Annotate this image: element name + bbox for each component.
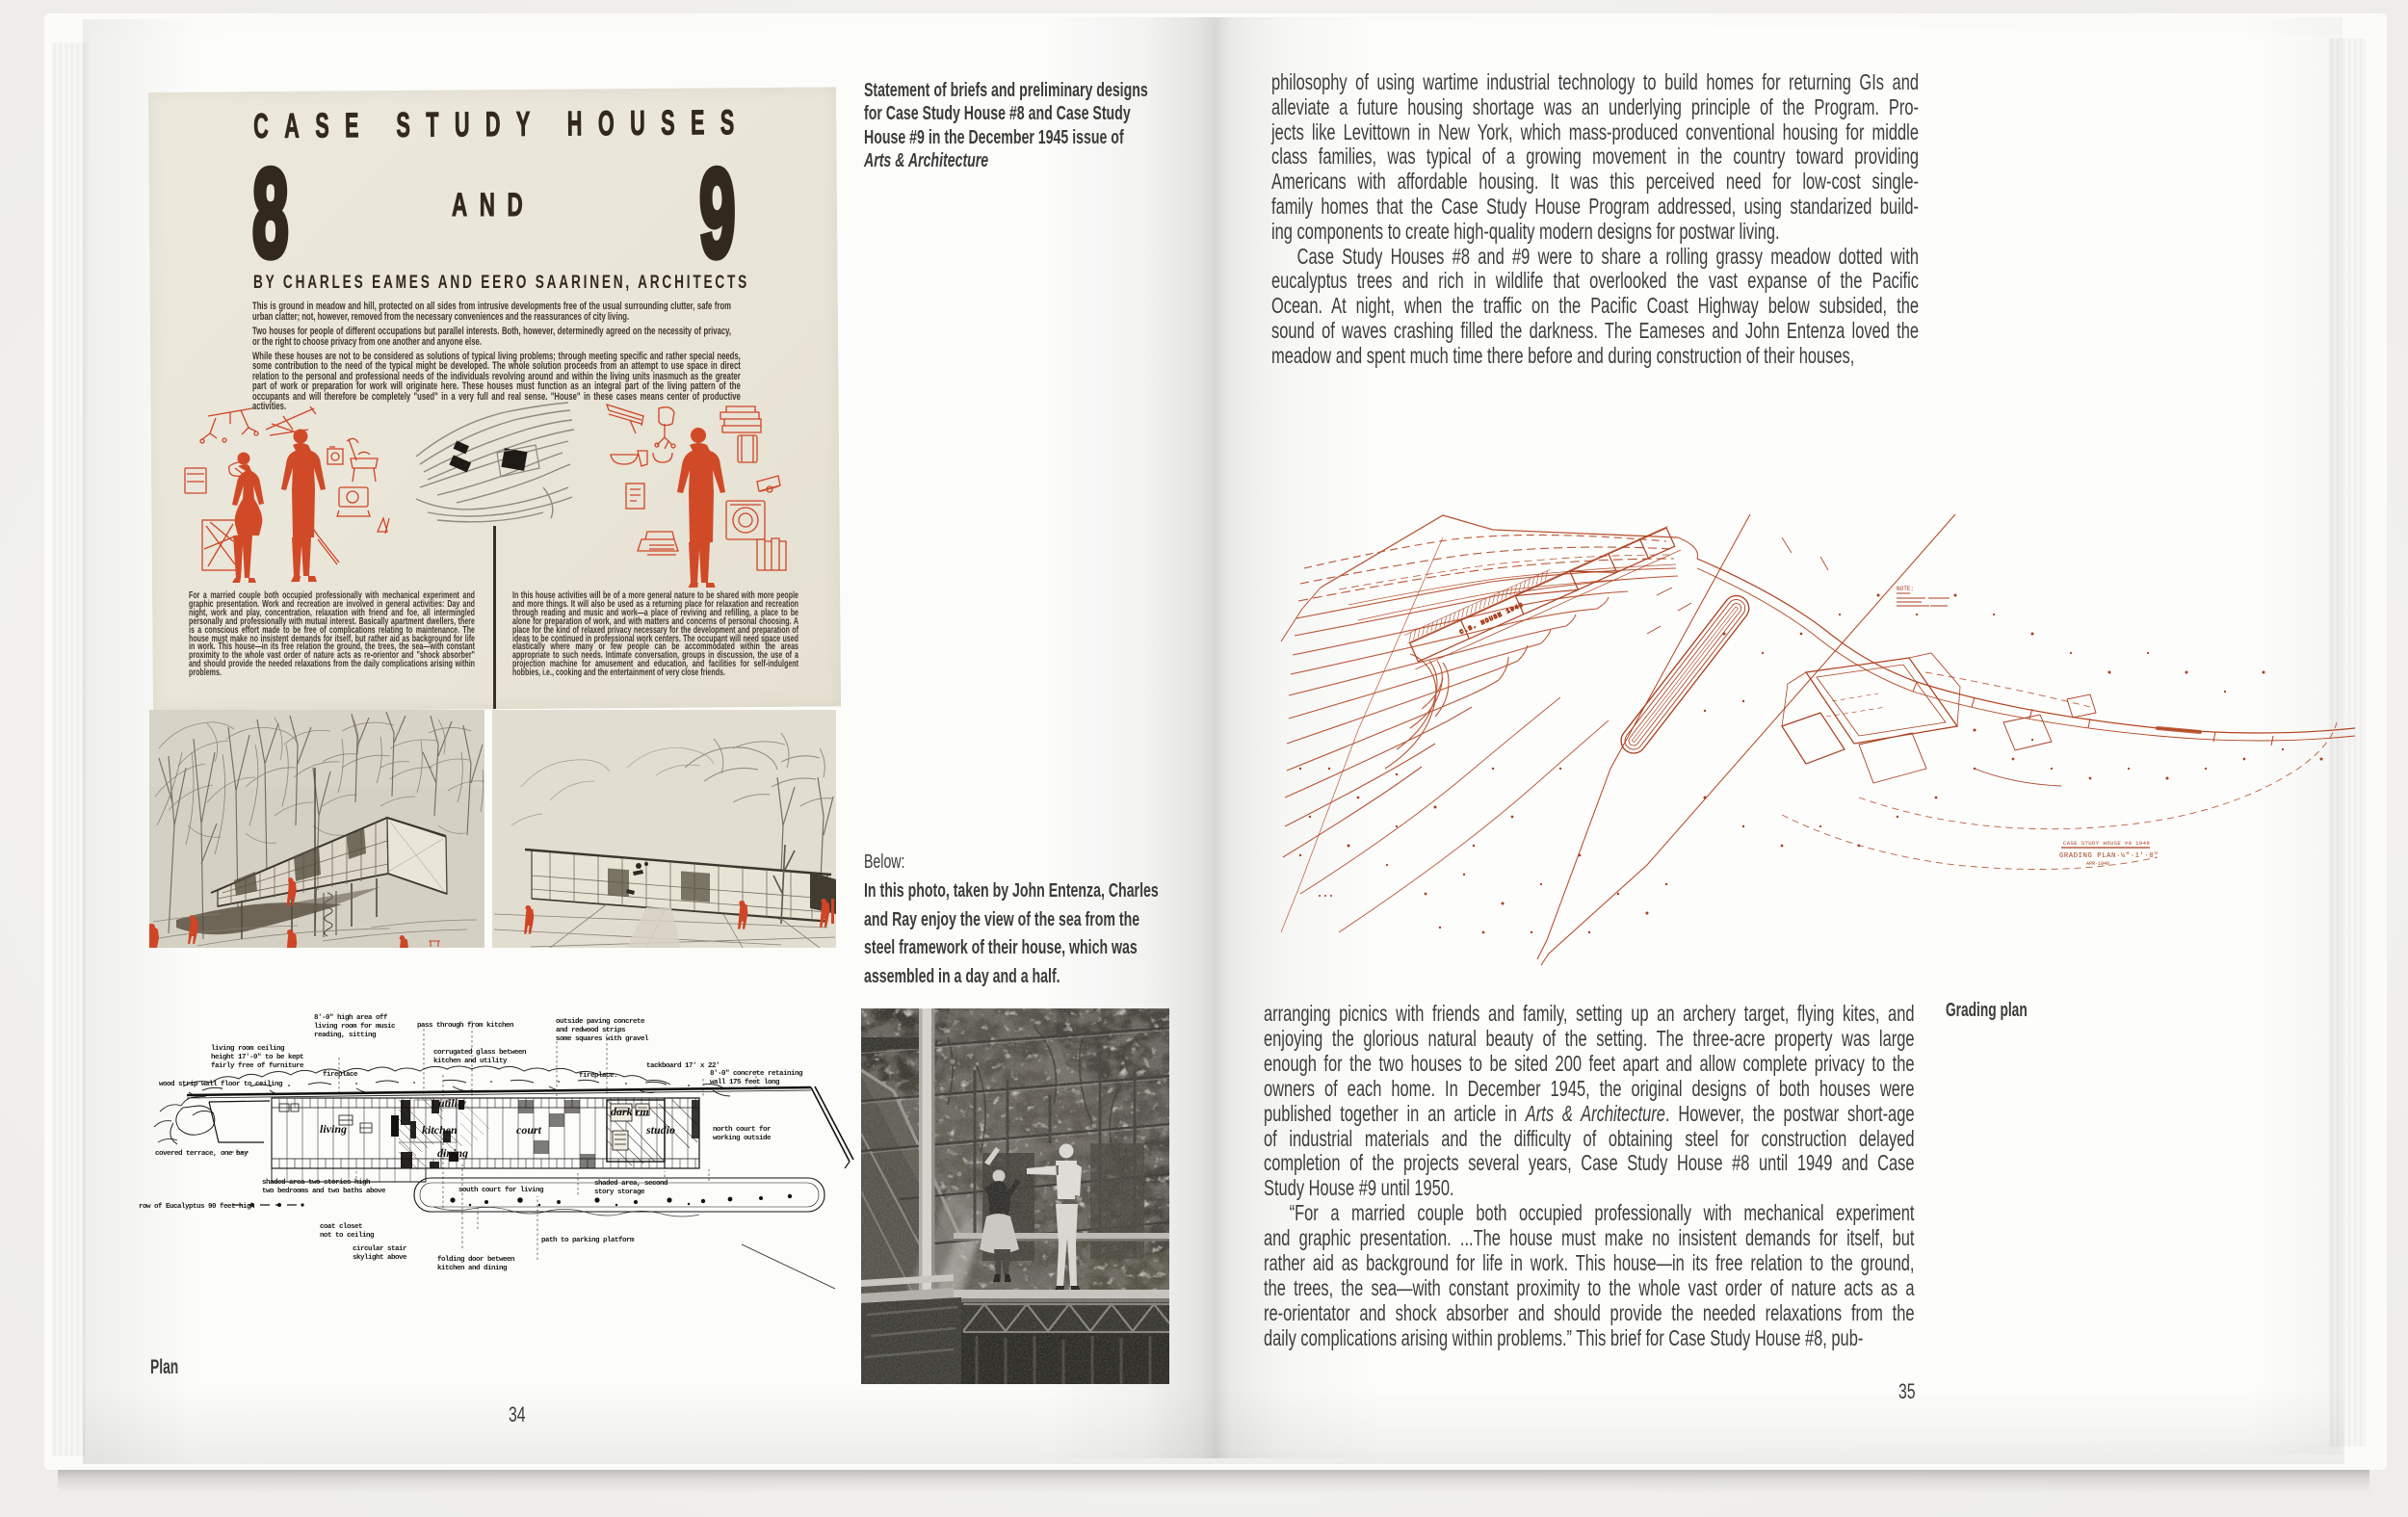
svg-text:circular stair: circular stair (353, 1245, 406, 1253)
svg-text:path to parking platform: path to parking platform (541, 1237, 635, 1244)
svg-text:covered terrace, one bay: covered terrace, one bay (155, 1150, 249, 1158)
svg-text:NOTE:: NOTE: (1897, 586, 1914, 592)
svg-text:working outside: working outside (713, 1135, 772, 1142)
svg-text:wall 175 feet long: wall 175 feet long (710, 1079, 780, 1086)
svg-text:APR·1948: APR·1948 (2086, 861, 2109, 867)
svg-text:reading, sitting: reading, sitting (314, 1032, 377, 1039)
svg-text:court: court (516, 1123, 542, 1137)
svg-text:outside paving concrete: outside paving concrete (556, 1018, 645, 1026)
svg-text:two bedrooms and two baths abo: two bedrooms and two baths above (262, 1188, 386, 1195)
svg-text:kitchen: kitchen (422, 1123, 458, 1137)
svg-text:living room ceiling: living room ceiling (211, 1045, 285, 1053)
svg-text:CASE STUDY HOUSE #9 1949: CASE STUDY HOUSE #9 1949 (2063, 840, 2150, 847)
svg-text:north court for: north court for (713, 1126, 771, 1134)
svg-text:living room for music: living room for music (314, 1023, 396, 1031)
svg-text:shaded area two stories high: shaded area two stories high (262, 1179, 371, 1187)
svg-text:living: living (320, 1122, 347, 1136)
svg-text:tackboard 17' x 22': tackboard 17' x 22' (646, 1062, 720, 1070)
svg-text:dining: dining (437, 1146, 468, 1160)
svg-text:skylight above: skylight above (353, 1254, 407, 1262)
svg-text:south court for living: south court for living (458, 1187, 544, 1194)
svg-text:story storage: story storage (594, 1189, 645, 1196)
svg-text:folding door between: folding door between (437, 1256, 515, 1264)
svg-text:fireplace: fireplace (323, 1071, 358, 1079)
svg-text:shaded area, second: shaded area, second (594, 1180, 667, 1188)
svg-text:kitchen and utility: kitchen and utility (433, 1058, 508, 1065)
svg-text:fairly free of furniture: fairly free of furniture (211, 1062, 304, 1070)
svg-text:kitchen and dining: kitchen and dining (437, 1265, 508, 1272)
svg-text:corrugated glass between: corrugated glass between (433, 1049, 527, 1057)
svg-text:wood strip wall floor to ceili: wood strip wall floor to ceiling (159, 1081, 283, 1088)
svg-text:utility: utility (438, 1096, 466, 1110)
svg-text:row of Eucalyptus 90 feet high: row of Eucalyptus 90 feet high (139, 1203, 255, 1211)
svg-text:some squares with gravel: some squares with gravel (556, 1035, 649, 1043)
svg-text:and redwood strips: and redwood strips (556, 1027, 626, 1034)
svg-text:GRADING PLAN·¼"·1'·0": GRADING PLAN·¼"·1'·0" (2059, 852, 2159, 860)
svg-text:8'-0" high area off: 8'-0" high area off (314, 1014, 388, 1022)
svg-text:height 17'-0" to be kept: height 17'-0" to be kept (211, 1054, 303, 1061)
svg-text:coat closet: coat closet (320, 1223, 362, 1231)
svg-text:not to ceiling: not to ceiling (320, 1232, 375, 1240)
svg-text:8'-0" concrete retaining: 8'-0" concrete retaining (710, 1070, 803, 1078)
svg-text:fireplace.: fireplace. (579, 1072, 617, 1080)
svg-text:pass through from kitchen: pass through from kitchen (417, 1022, 514, 1030)
svg-text:studio: studio (645, 1123, 675, 1137)
svg-text:dark rm: dark rm (611, 1105, 649, 1118)
